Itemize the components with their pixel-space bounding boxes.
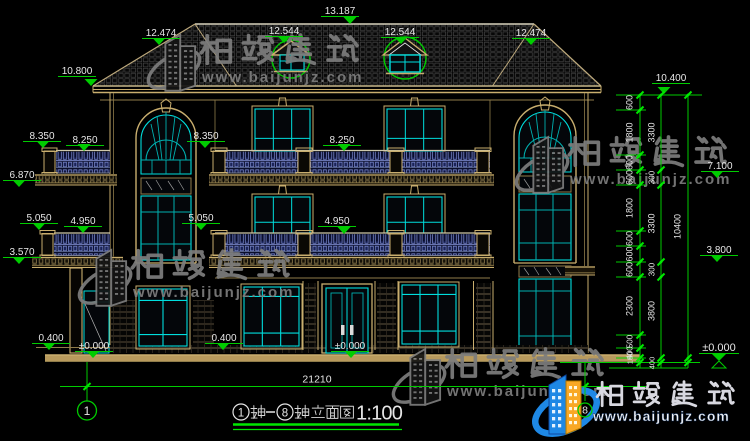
svg-text:150: 150 <box>626 352 635 365</box>
svg-text:600: 600 <box>625 246 635 261</box>
svg-text:3800: 3800 <box>647 301 657 321</box>
svg-text:±0.000: ±0.000 <box>79 341 110 352</box>
svg-text:0.400: 0.400 <box>38 333 63 344</box>
svg-text:400: 400 <box>648 357 657 370</box>
svg-text:10400: 10400 <box>673 214 683 239</box>
svg-text:4.950: 4.950 <box>324 216 349 227</box>
svg-text:2300: 2300 <box>625 296 635 316</box>
svg-text:10.400: 10.400 <box>656 73 687 84</box>
svg-text:±0.000: ±0.000 <box>702 342 736 354</box>
svg-text:12.544: 12.544 <box>269 26 300 37</box>
svg-text:8.350: 8.350 <box>29 131 54 142</box>
svg-text:3300: 3300 <box>647 213 657 233</box>
svg-text:10.800: 10.800 <box>62 66 93 77</box>
svg-text:www.baijunjz.com: www.baijunjz.com <box>201 69 363 86</box>
svg-text:3.570: 3.570 <box>9 247 34 258</box>
svg-text:600: 600 <box>625 155 635 170</box>
svg-text:5.050: 5.050 <box>188 213 213 224</box>
svg-text:600: 600 <box>625 95 635 110</box>
svg-text:3.800: 3.800 <box>706 245 731 256</box>
svg-text:13.187: 13.187 <box>325 6 356 17</box>
svg-text:300: 300 <box>648 170 657 184</box>
svg-text:8: 8 <box>282 408 288 420</box>
svg-text:5.050: 5.050 <box>26 213 51 224</box>
svg-text:21210: 21210 <box>302 374 331 386</box>
svg-text:600: 600 <box>625 170 635 185</box>
svg-text:1800: 1800 <box>625 122 635 142</box>
svg-text:7.100: 7.100 <box>707 161 732 172</box>
svg-text:4.950: 4.950 <box>70 216 95 227</box>
svg-text:www.baijunjz.com: www.baijunjz.com <box>592 408 730 424</box>
svg-text:600: 600 <box>625 262 635 277</box>
svg-text:0.400: 0.400 <box>211 333 236 344</box>
svg-text:8.350: 8.350 <box>193 131 218 142</box>
svg-text:12.544: 12.544 <box>385 27 416 38</box>
svg-text:1: 1 <box>84 404 91 418</box>
svg-text:1: 1 <box>238 408 244 420</box>
svg-text:www.baijunjz.com: www.baijunjz.com <box>132 284 294 301</box>
svg-text:±0.000: ±0.000 <box>335 341 366 352</box>
svg-text:600: 600 <box>625 231 635 246</box>
svg-text:12.474: 12.474 <box>516 28 547 39</box>
svg-text:3300: 3300 <box>647 122 657 142</box>
svg-text:8: 8 <box>582 405 588 417</box>
svg-text:1800: 1800 <box>625 198 635 218</box>
svg-text:300: 300 <box>648 262 657 276</box>
svg-text:500: 500 <box>626 334 635 348</box>
svg-text:1:100: 1:100 <box>356 403 403 425</box>
svg-text:6.870: 6.870 <box>9 170 34 181</box>
svg-text:12.474: 12.474 <box>146 28 177 39</box>
